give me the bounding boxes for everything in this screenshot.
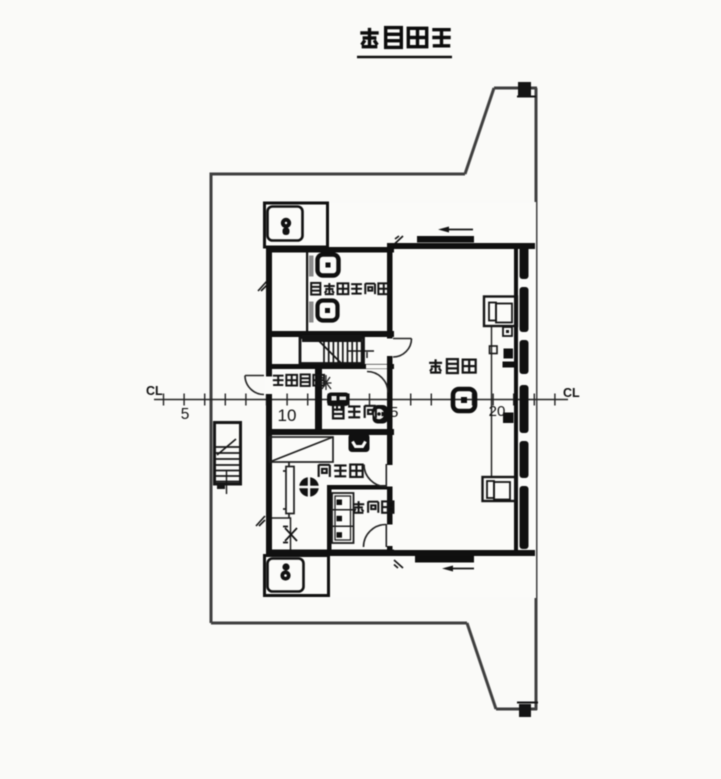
svg-text:CL: CL (563, 386, 580, 400)
svg-text:CL: CL (146, 384, 163, 398)
svg-text:10: 10 (278, 406, 297, 425)
svg-text:5: 5 (181, 406, 190, 423)
